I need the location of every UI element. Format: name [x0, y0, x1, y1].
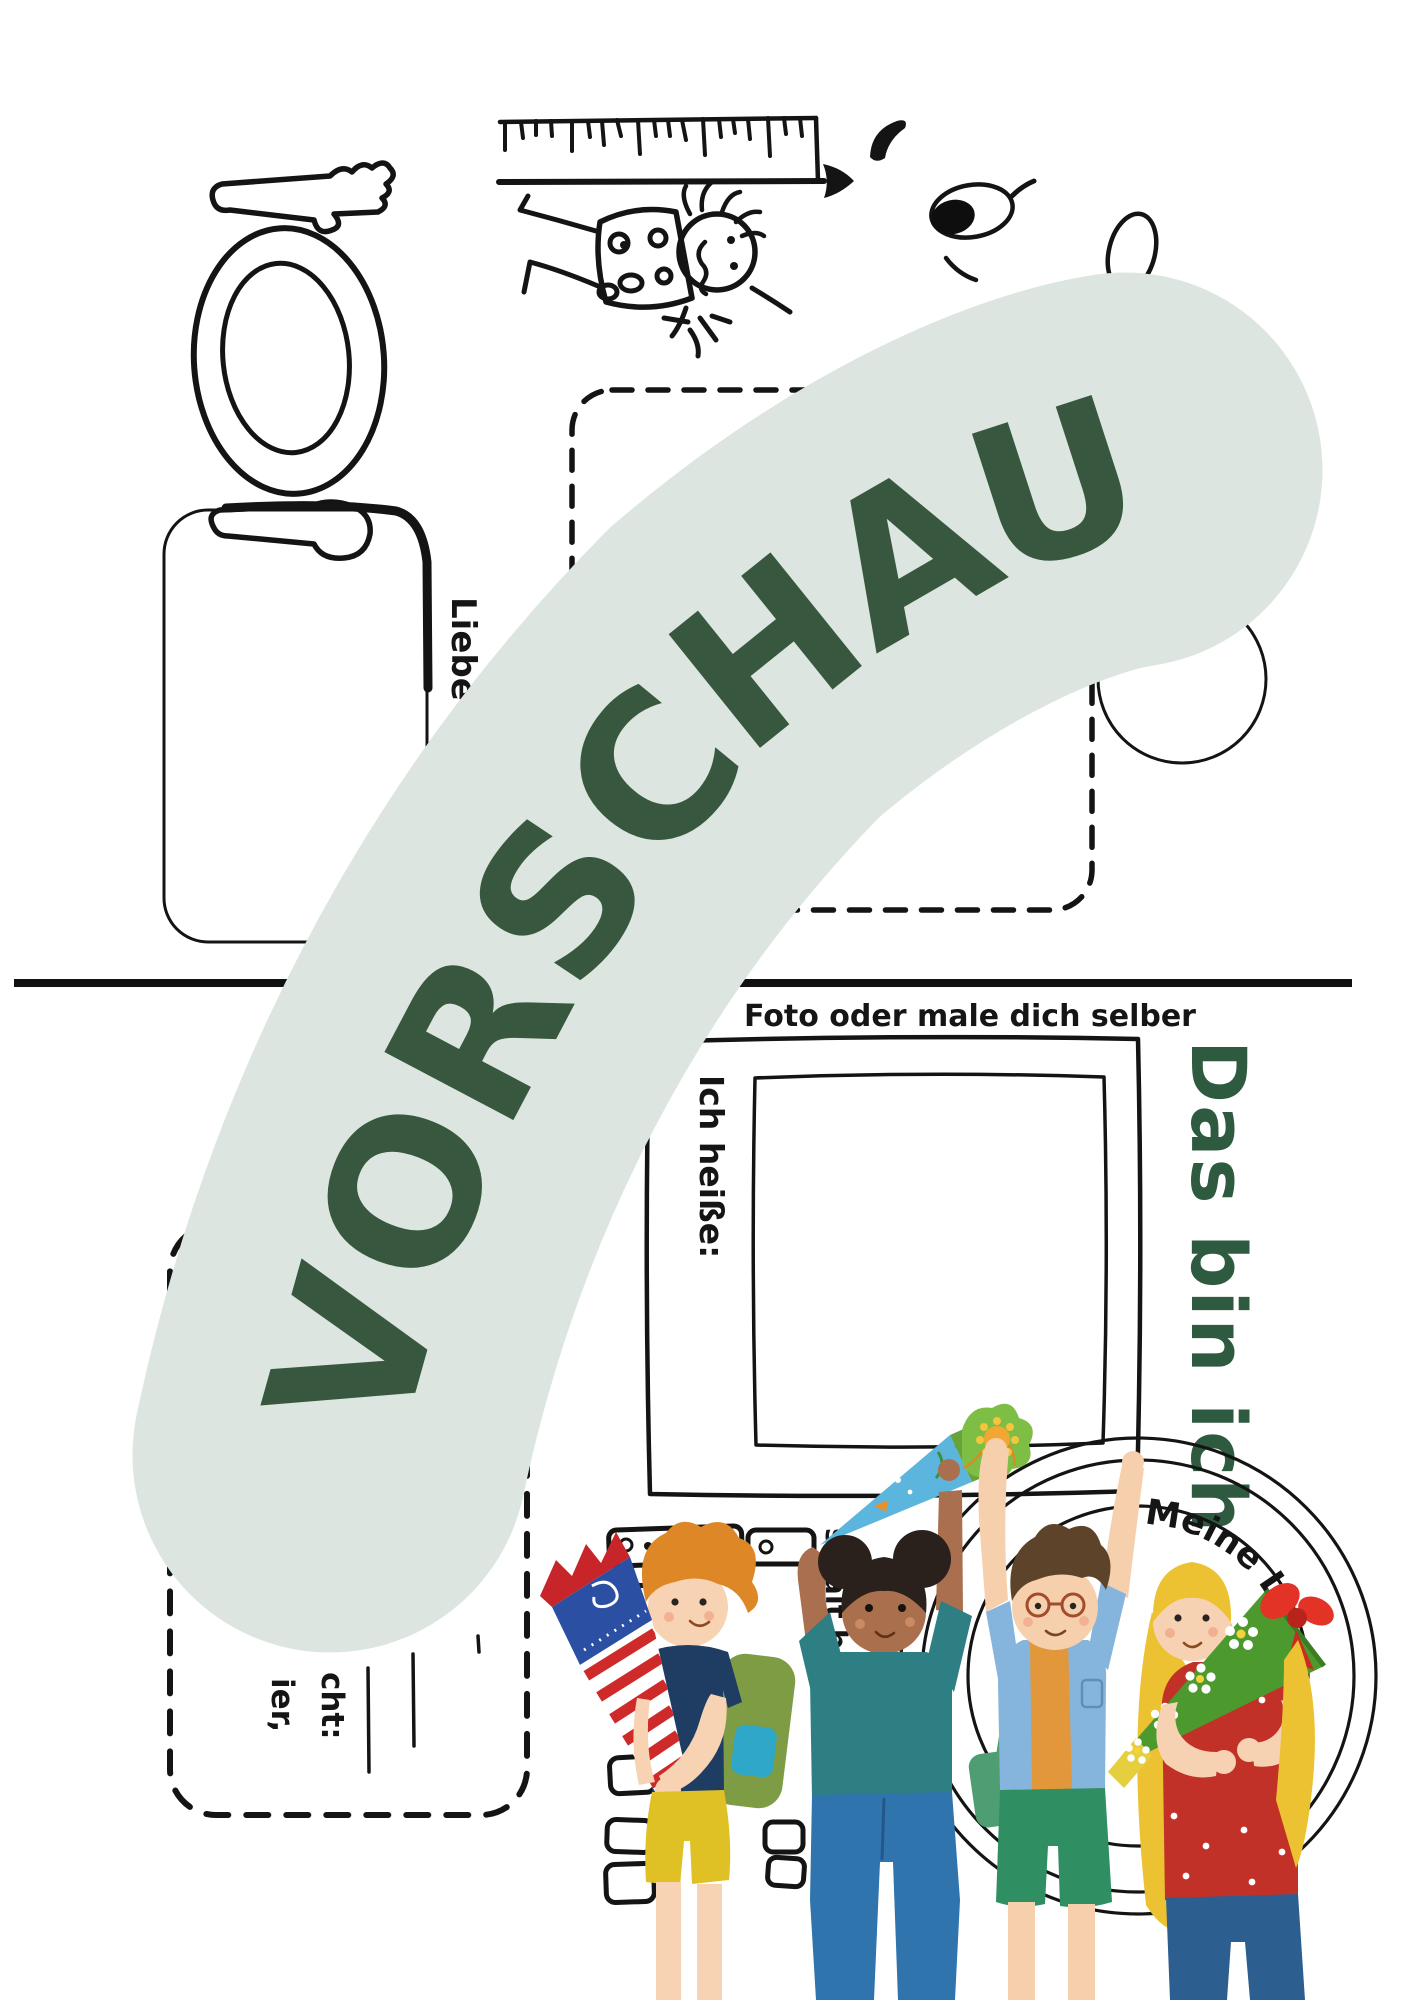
- doodle-dot: [620, 241, 628, 249]
- photo-frame-inner: [753, 1074, 1106, 1447]
- arrow-head: [823, 164, 854, 198]
- eye-lower-curve: [946, 258, 976, 280]
- hand: [938, 1459, 960, 1481]
- photo-caption: Foto oder male dich selber: [744, 999, 1196, 1034]
- ruler-ticks: [505, 118, 802, 156]
- doodle-hair: [684, 182, 764, 236]
- doodle-eye: [730, 262, 738, 270]
- tshirt: [810, 1652, 952, 1803]
- doodle-dot: [620, 275, 642, 291]
- page-title: Das bin ich: [1174, 1040, 1263, 1534]
- bow-knot: [1287, 1608, 1307, 1628]
- backpack-pocket: [730, 1724, 778, 1779]
- blush: [704, 1611, 714, 1621]
- inner-shirt: [1030, 1639, 1072, 1790]
- doodle-arm: [520, 196, 596, 231]
- bubble: [886, 1466, 891, 1471]
- doodle-head: [679, 214, 755, 290]
- child-redhead-boy: [540, 1522, 798, 2000]
- eye: [1202, 1614, 1209, 1621]
- shorts: [996, 1788, 1112, 1907]
- answer-line: [413, 1654, 414, 1746]
- child-boy-glasses: [967, 1438, 1144, 2000]
- fork-icon: [212, 163, 393, 232]
- arm: [978, 1443, 1009, 1612]
- blush: [1165, 1628, 1175, 1638]
- rounded-box-thick-edge: [226, 506, 428, 688]
- doodle-arm: [524, 262, 598, 292]
- bubble: [908, 1490, 913, 1495]
- ruler-arrow-drawing: [499, 118, 854, 198]
- blush: [664, 1612, 674, 1622]
- leg: [697, 1884, 722, 2000]
- ruler-right-edge: [816, 118, 818, 181]
- field-fragment-text: ier,: [264, 1678, 300, 1732]
- box: [767, 1857, 805, 1887]
- doodle-arm: [752, 288, 790, 312]
- eye: [865, 1604, 873, 1612]
- blush: [1079, 1616, 1089, 1626]
- bubble: [895, 1477, 901, 1483]
- shorts: [645, 1790, 730, 1886]
- doodle-dot: [650, 230, 666, 246]
- answer-line: [478, 1636, 479, 1652]
- eye: [671, 1598, 678, 1605]
- hand: [985, 1438, 1007, 1460]
- petal-stroke: [870, 120, 906, 160]
- name-field-label: Ich heiße:: [692, 1075, 731, 1258]
- leg: [1008, 1902, 1035, 2000]
- plate-with-cutlery-drawing: [185, 163, 393, 558]
- leg: [1068, 1904, 1095, 2000]
- strip-hole: [760, 1541, 772, 1553]
- jeans-seam: [882, 1798, 884, 1860]
- eye: [699, 1598, 706, 1605]
- eye: [1035, 1603, 1041, 1609]
- field-fragment-text: cht:: [314, 1672, 350, 1740]
- plate-inner: [213, 257, 358, 459]
- worksheet-preview-page: Liebe Foto oder male dich selber Ich hei…: [0, 0, 1414, 2000]
- doodle-legs: [664, 308, 730, 356]
- jeans: [810, 1792, 960, 2000]
- eye-doodle-drawing: [927, 178, 1034, 280]
- eye: [1070, 1603, 1076, 1609]
- blush: [855, 1619, 865, 1629]
- eye: [1174, 1614, 1181, 1621]
- arrow-shaft: [499, 181, 824, 182]
- eye: [898, 1604, 906, 1612]
- hand: [1212, 1750, 1236, 1774]
- doodle-dot: [657, 269, 671, 283]
- box: [765, 1822, 803, 1852]
- child-doodle-drawing: [520, 182, 790, 356]
- doodle-eye: [727, 236, 735, 244]
- blush: [905, 1617, 915, 1627]
- eye-brow-stroke: [1012, 181, 1034, 196]
- leg: [656, 1882, 681, 2000]
- blush: [1208, 1627, 1218, 1637]
- answer-line: [368, 1668, 369, 1772]
- hand: [1122, 1451, 1144, 1473]
- hand: [1237, 1738, 1261, 1762]
- child-blonde-girl: [1108, 1562, 1339, 2000]
- preview-canvas: Liebe Foto oder male dich selber Ich hei…: [0, 0, 1414, 2000]
- jeans: [1166, 1894, 1305, 2000]
- blush: [1023, 1617, 1033, 1627]
